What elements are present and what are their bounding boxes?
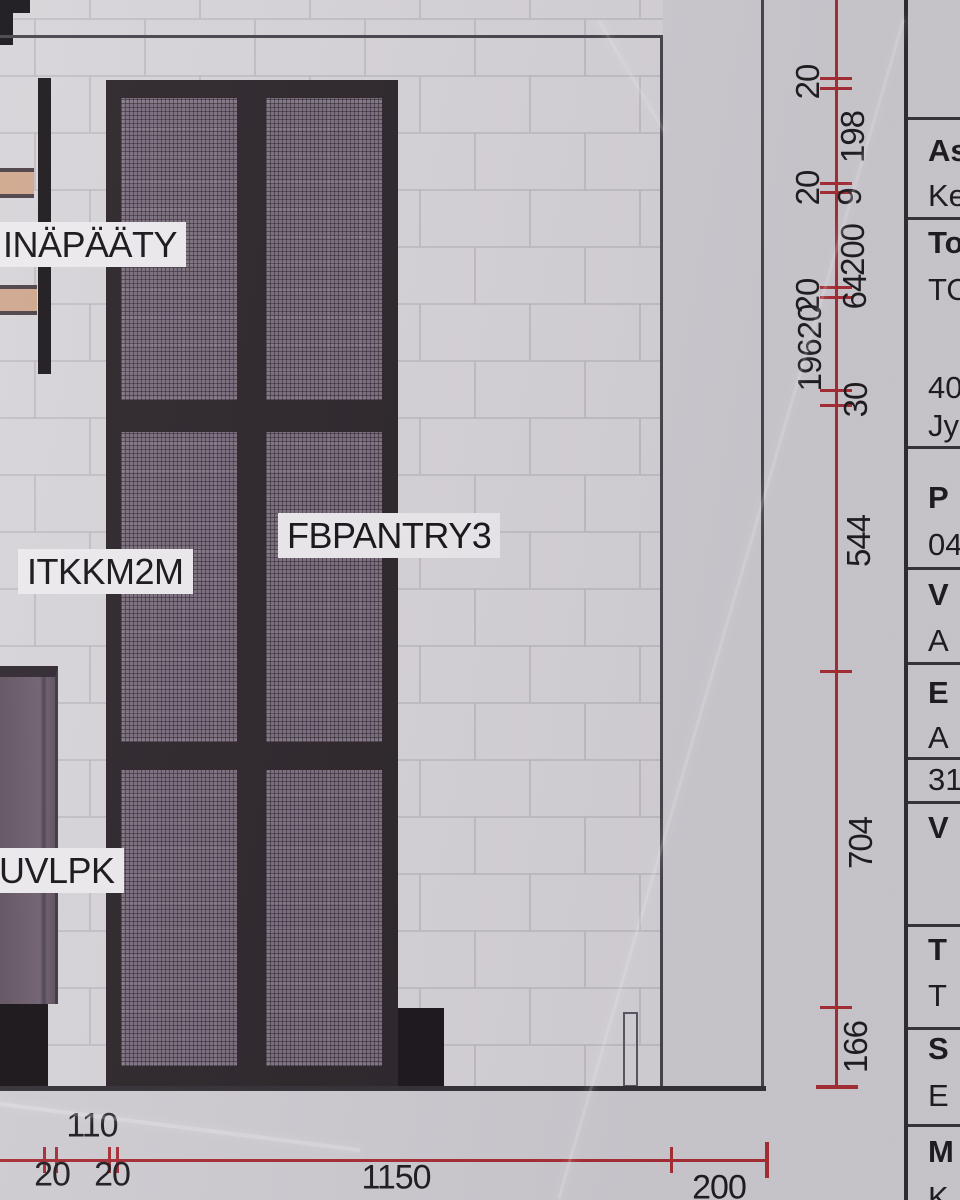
title-block-divider xyxy=(908,1027,960,1030)
dim-value: 20 xyxy=(789,65,827,100)
title-block-text: P xyxy=(928,480,949,516)
title-block-text: E xyxy=(928,1078,949,1114)
title-block-text: 04 xyxy=(928,527,960,563)
title-block-divider xyxy=(908,446,960,449)
title-block-text: A xyxy=(928,623,949,659)
dim-value: 544 xyxy=(840,515,878,567)
pantry-base-step xyxy=(398,1008,444,1087)
dim-value: 20 xyxy=(789,171,827,206)
dim-end-tick xyxy=(816,1085,858,1089)
dim-value: 20 xyxy=(34,1156,70,1195)
title-block-text: Jy xyxy=(928,408,959,444)
title-block-divider xyxy=(908,757,960,760)
elevation-frame-top-line xyxy=(0,35,662,38)
title-block-text: To xyxy=(928,225,960,261)
title-block-text: 31 xyxy=(928,762,960,798)
dim-end-tick xyxy=(765,1142,769,1178)
cropped-left-element-2 xyxy=(0,0,13,45)
title-block-divider xyxy=(908,567,960,570)
floor-line xyxy=(0,1086,766,1091)
vertical-dimension-line xyxy=(835,0,838,1088)
title-block-text: Ke xyxy=(928,178,960,214)
title-block-border xyxy=(904,0,908,1200)
title-block-text: K xyxy=(928,1180,949,1200)
dim-tick xyxy=(820,1006,852,1009)
title-block-text: A xyxy=(928,720,949,756)
label-cabinet-left: ITKKM2M xyxy=(18,549,193,594)
mesh-panel xyxy=(266,770,382,1066)
label-wall-end: INÄPÄÄTY xyxy=(0,222,186,267)
kitchen-elevation-drawing-photo: INÄPÄÄTY ITKKM2M FBPANTRY3 UVLPK 20 198 … xyxy=(0,0,960,1200)
left-cabinet-plinth xyxy=(0,1004,48,1087)
title-block-text: TO xyxy=(928,272,960,308)
title-block-divider xyxy=(908,117,960,120)
plinth-end-outline xyxy=(623,1012,638,1087)
title-block-text: As xyxy=(928,133,960,169)
title-block-divider xyxy=(908,1124,960,1127)
dim-value: 1150 xyxy=(361,1159,430,1198)
elevation-frame-right-line xyxy=(660,35,663,1087)
mesh-panel xyxy=(121,770,237,1066)
label-cabinet-lower: UVLPK xyxy=(0,848,124,893)
title-block-text: T xyxy=(928,978,947,1014)
elevation-outer-boundary-line xyxy=(761,0,764,1088)
title-block-text: E xyxy=(928,675,949,711)
dim-value: 166 xyxy=(837,1021,875,1073)
dim-value: 200 xyxy=(692,1169,746,1200)
mesh-panel xyxy=(266,432,382,742)
title-block-divider xyxy=(908,924,960,927)
title-block-text: V xyxy=(928,577,949,613)
dim-value: 30 xyxy=(837,383,875,418)
title-block-text: V xyxy=(928,810,949,846)
dim-value: 198 xyxy=(834,111,872,163)
title-block-divider xyxy=(908,801,960,804)
title-block-text: T xyxy=(928,932,947,968)
wood-trim-strip xyxy=(0,168,34,198)
wood-trim-strip xyxy=(0,285,37,315)
lower-left-cabinet xyxy=(0,666,58,1004)
title-block-text: S xyxy=(928,1031,949,1067)
mesh-panel xyxy=(266,98,382,400)
dim-value: 20 xyxy=(94,1156,130,1195)
dim-tick xyxy=(670,1147,673,1173)
title-block-divider xyxy=(908,662,960,665)
dim-value: 704 xyxy=(842,817,880,869)
paper-crease xyxy=(0,1102,360,1152)
title-block-divider xyxy=(908,217,960,220)
dim-tick xyxy=(820,670,852,673)
dim-value: 64 xyxy=(836,275,874,310)
label-pantry: FBPANTRY3 xyxy=(278,513,500,558)
title-block-text: M xyxy=(928,1134,954,1170)
title-block-text: 40 xyxy=(928,370,960,406)
